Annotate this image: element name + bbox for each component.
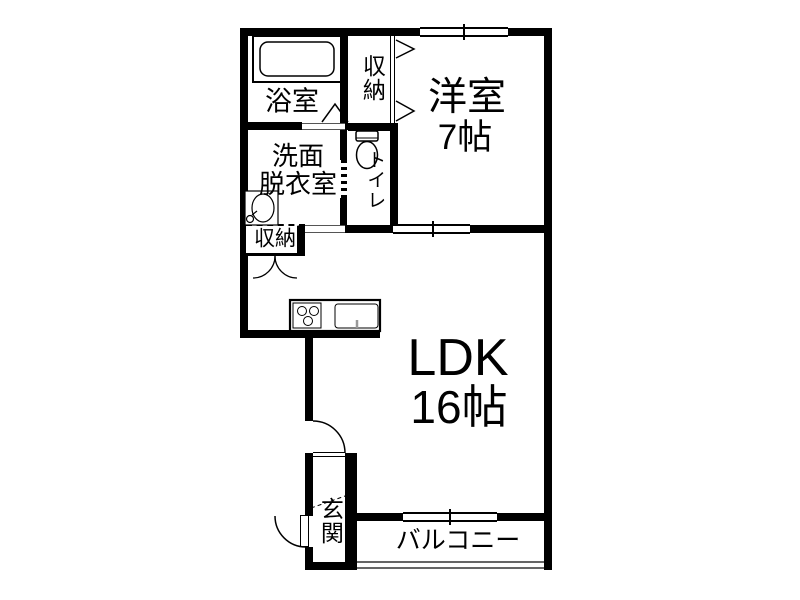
fixtures-layer xyxy=(0,0,800,600)
stove-burner xyxy=(298,307,307,316)
stove-burner xyxy=(310,307,319,316)
bathroom-door-mark xyxy=(322,104,348,122)
room-label-ldk: LDK xyxy=(407,330,508,386)
room-label-toilet: トイレ xyxy=(364,150,385,210)
closet-bifold-mark-1 xyxy=(396,40,414,58)
floor-plan: 浴室 収納 洋室 7帖 洗面 脱衣室 トイレ 収納 LDK 16帖 玄関 バルコ… xyxy=(0,0,800,600)
entrance-inner-door-arc xyxy=(313,421,345,453)
front-door-arc xyxy=(275,516,306,547)
room-label-washroom-line2: 脱衣室 xyxy=(259,170,337,198)
closet-door-arc-right xyxy=(275,256,297,278)
room-label-balcony: バルコニー xyxy=(396,528,521,555)
stove-burner xyxy=(304,317,313,326)
room-label-closet-ldk: 収納 xyxy=(254,229,296,252)
toilet-tank xyxy=(356,131,378,141)
room-label-western-room: 洋室 xyxy=(428,77,506,119)
washbasin-faucet xyxy=(247,216,254,223)
room-size-ldk: 16帖 xyxy=(410,383,507,433)
room-label-closet-upper: 収納 xyxy=(360,54,385,102)
room-label-bathroom: 浴室 xyxy=(265,87,319,116)
closet-door-arc-left xyxy=(253,256,275,278)
room-label-washroom-line1: 洗面 xyxy=(272,142,324,170)
closet-bifold-mark-2 xyxy=(396,101,414,121)
bathtub-inner xyxy=(260,42,334,76)
room-size-western-room: 7帖 xyxy=(438,119,492,157)
room-label-entrance: 玄関 xyxy=(318,497,343,545)
